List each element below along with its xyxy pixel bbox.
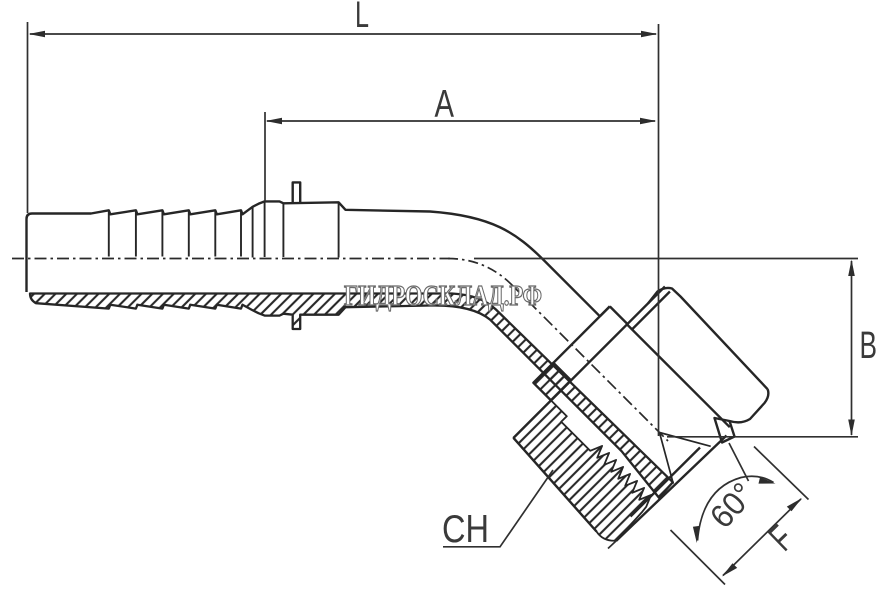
svg-text:CH: CH [442, 508, 489, 551]
svg-text:A: A [435, 83, 455, 126]
svg-text:L: L [355, 0, 369, 35]
svg-text:ГИДРОСКЛАД.РФ: ГИДРОСКЛАД.РФ [344, 280, 542, 312]
svg-text:B: B [860, 325, 878, 367]
